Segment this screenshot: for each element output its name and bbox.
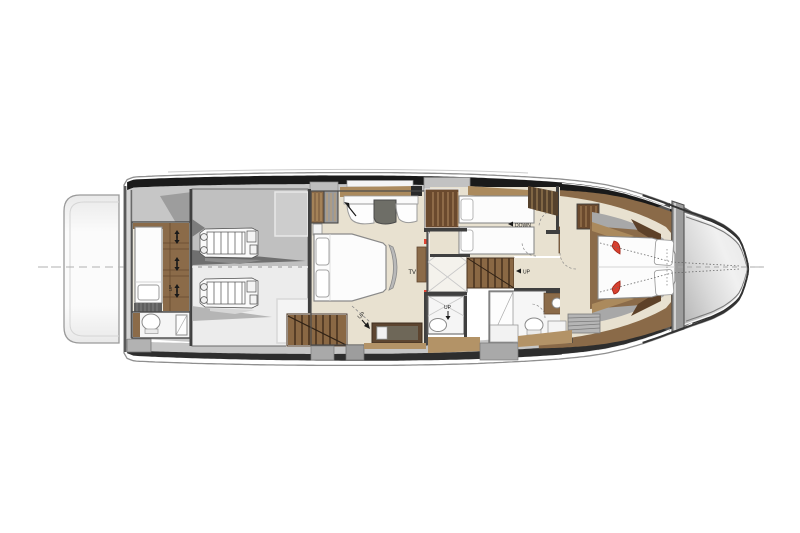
svg-text:UP: UP [523,270,531,276]
svg-text:UP: UP [444,305,452,311]
svg-text:UP: UP [168,285,173,291]
svg-text:TV: TV [408,270,416,276]
svg-text:DOWN: DOWN [515,223,531,229]
